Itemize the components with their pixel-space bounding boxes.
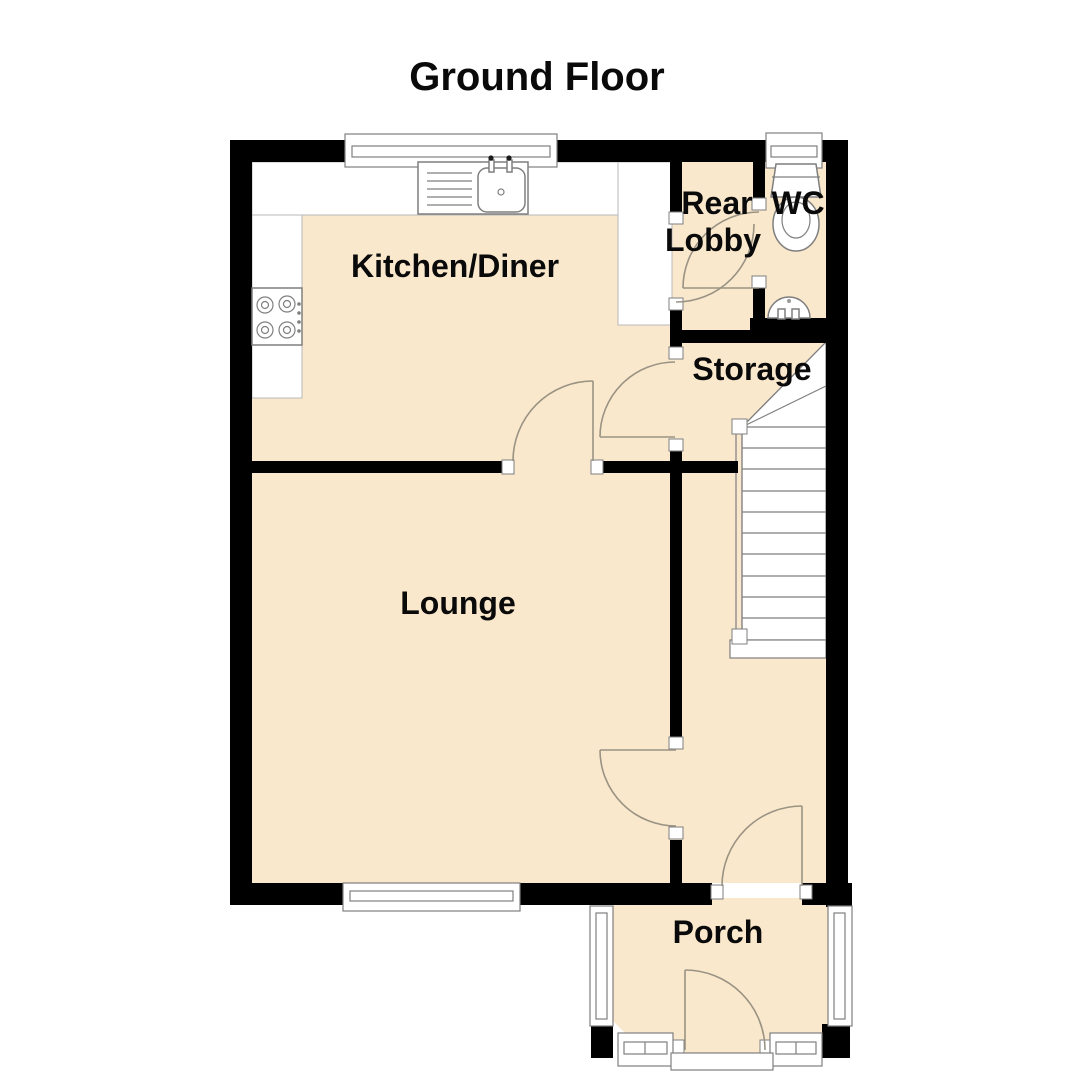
sink-tap-head: [506, 155, 511, 160]
jamb: [669, 827, 683, 839]
wall-lounge-hall-stub: [670, 840, 682, 883]
newel-post-top: [732, 419, 747, 434]
label-kitchen-diner: Kitchen/Diner: [351, 248, 559, 284]
jamb: [502, 460, 514, 474]
wall-wc-bottom: [750, 318, 826, 331]
jamb: [669, 439, 683, 451]
plan-title: Ground Floor: [409, 55, 665, 99]
porch-right-window: [828, 906, 852, 1026]
label-lounge: Lounge: [400, 585, 516, 621]
porch-front-right-window: [770, 1033, 822, 1066]
wall-lobby-left-top: [670, 162, 682, 214]
kitchen-sink-icon: [418, 155, 528, 214]
hob-icon: [252, 288, 302, 345]
wall-lobby-storage: [670, 330, 826, 343]
label-storage: Storage: [692, 351, 811, 387]
wc-window: [766, 133, 822, 168]
wall-exterior-right: [826, 140, 848, 905]
newel-post-bottom: [732, 629, 747, 644]
sink-tap: [489, 160, 494, 172]
wall-lounge-hall: [670, 461, 682, 738]
jamb: [711, 885, 723, 899]
porch-post-bottom-right: [822, 1024, 850, 1058]
wall-kitchen-storage-bottom: [670, 451, 682, 461]
wall-lobby-left-bottom: [670, 310, 682, 330]
sink-tap-head: [488, 155, 493, 160]
porch-post-top-right: [826, 883, 852, 907]
label-rear: Rear: [681, 185, 752, 221]
porch-left-window: [590, 906, 613, 1026]
jamb: [669, 737, 683, 749]
lounge-window: [343, 883, 520, 911]
sink-tap: [507, 160, 512, 172]
wall-rear-lobby-top: [672, 149, 756, 162]
wall-wc-partition-bottom: [753, 288, 765, 318]
label-lobby: Lobby: [665, 222, 761, 258]
floorplan-page: Ground Floor: [0, 0, 1080, 1080]
sink-bowl: [478, 168, 525, 212]
floorplan-drawing: Ground Floor: [0, 0, 1080, 1080]
label-wc: WC: [771, 185, 824, 221]
jamb: [591, 460, 603, 474]
wall-storage-hall: [682, 461, 738, 473]
wall-exterior-left: [230, 140, 252, 905]
label-porch: Porch: [673, 914, 764, 950]
porch-post-bottom-left: [591, 1024, 613, 1058]
jamb: [752, 198, 766, 210]
wall-kitchen-lounge-left: [252, 461, 502, 473]
jamb: [800, 885, 812, 899]
jamb: [752, 276, 766, 288]
porch-door-floor: [673, 1030, 771, 1055]
porch-front-left-window: [618, 1033, 673, 1066]
counter-tall-unit: [618, 162, 672, 325]
jamb: [669, 347, 683, 359]
wall-wc-partition-top: [753, 162, 765, 198]
front-door-threshold: [671, 1053, 773, 1070]
jamb: [669, 298, 683, 310]
